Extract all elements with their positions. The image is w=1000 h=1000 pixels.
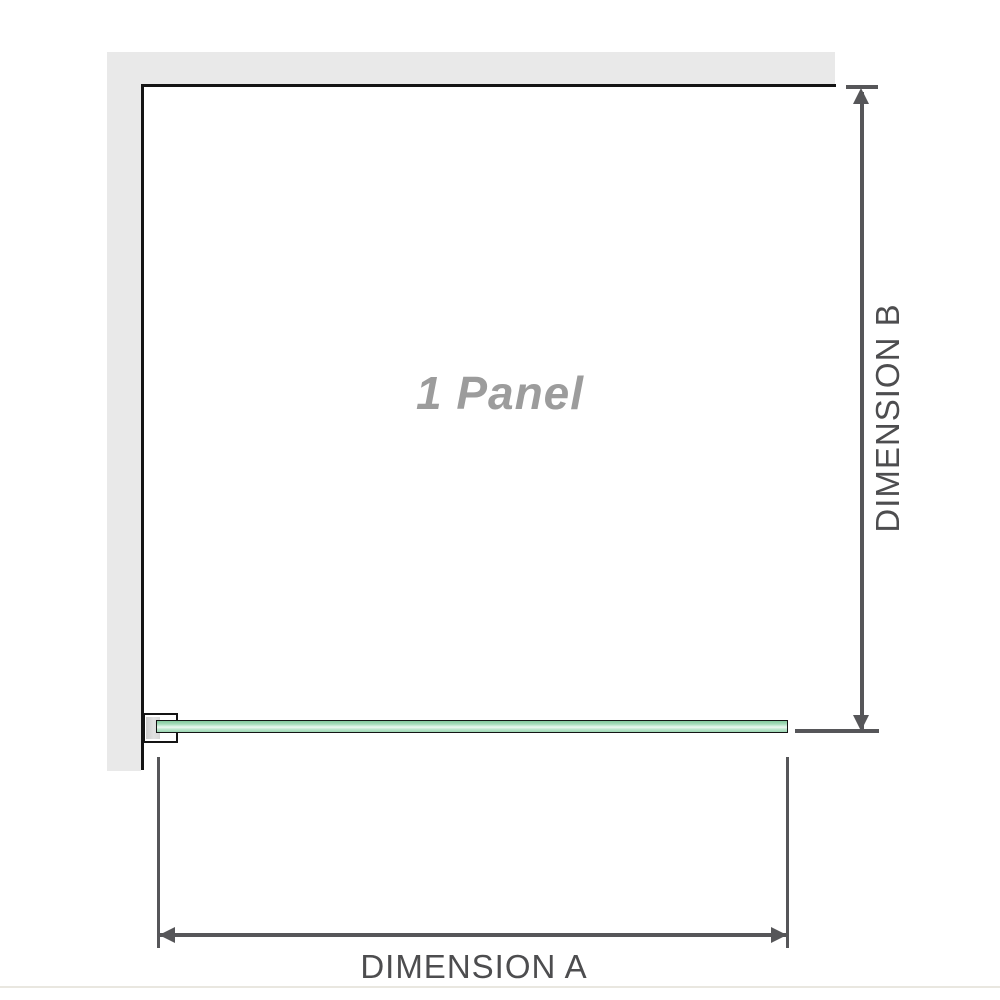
- dimension-a-arrow-left-icon: [159, 927, 175, 943]
- bottom-divider: [0, 986, 1000, 988]
- dimension-b-arrow-up-icon: [853, 88, 869, 104]
- wall-left: [107, 52, 141, 771]
- glass-panel-bar: [156, 720, 788, 733]
- dimension-b-arrow-down-icon: [853, 715, 869, 731]
- dimension-b-label: DIMENSION B: [870, 268, 906, 568]
- dimension-a-extension-right: [786, 757, 789, 948]
- dimension-b-line: [860, 92, 864, 732]
- panel-outline-left: [141, 84, 144, 770]
- dimension-a-extension-left: [157, 757, 160, 948]
- panel-label: 1 Panel: [350, 363, 650, 423]
- wall-top: [107, 52, 835, 84]
- dimension-a-label: DIMENSION A: [324, 948, 624, 986]
- dimension-a-arrow-right-icon: [771, 927, 787, 943]
- dimension-a-line: [160, 933, 787, 937]
- panel-outline-top: [141, 84, 836, 87]
- panel-dimension-diagram: 1 Panel DIMENSION B DIMENSION A: [0, 0, 1000, 1000]
